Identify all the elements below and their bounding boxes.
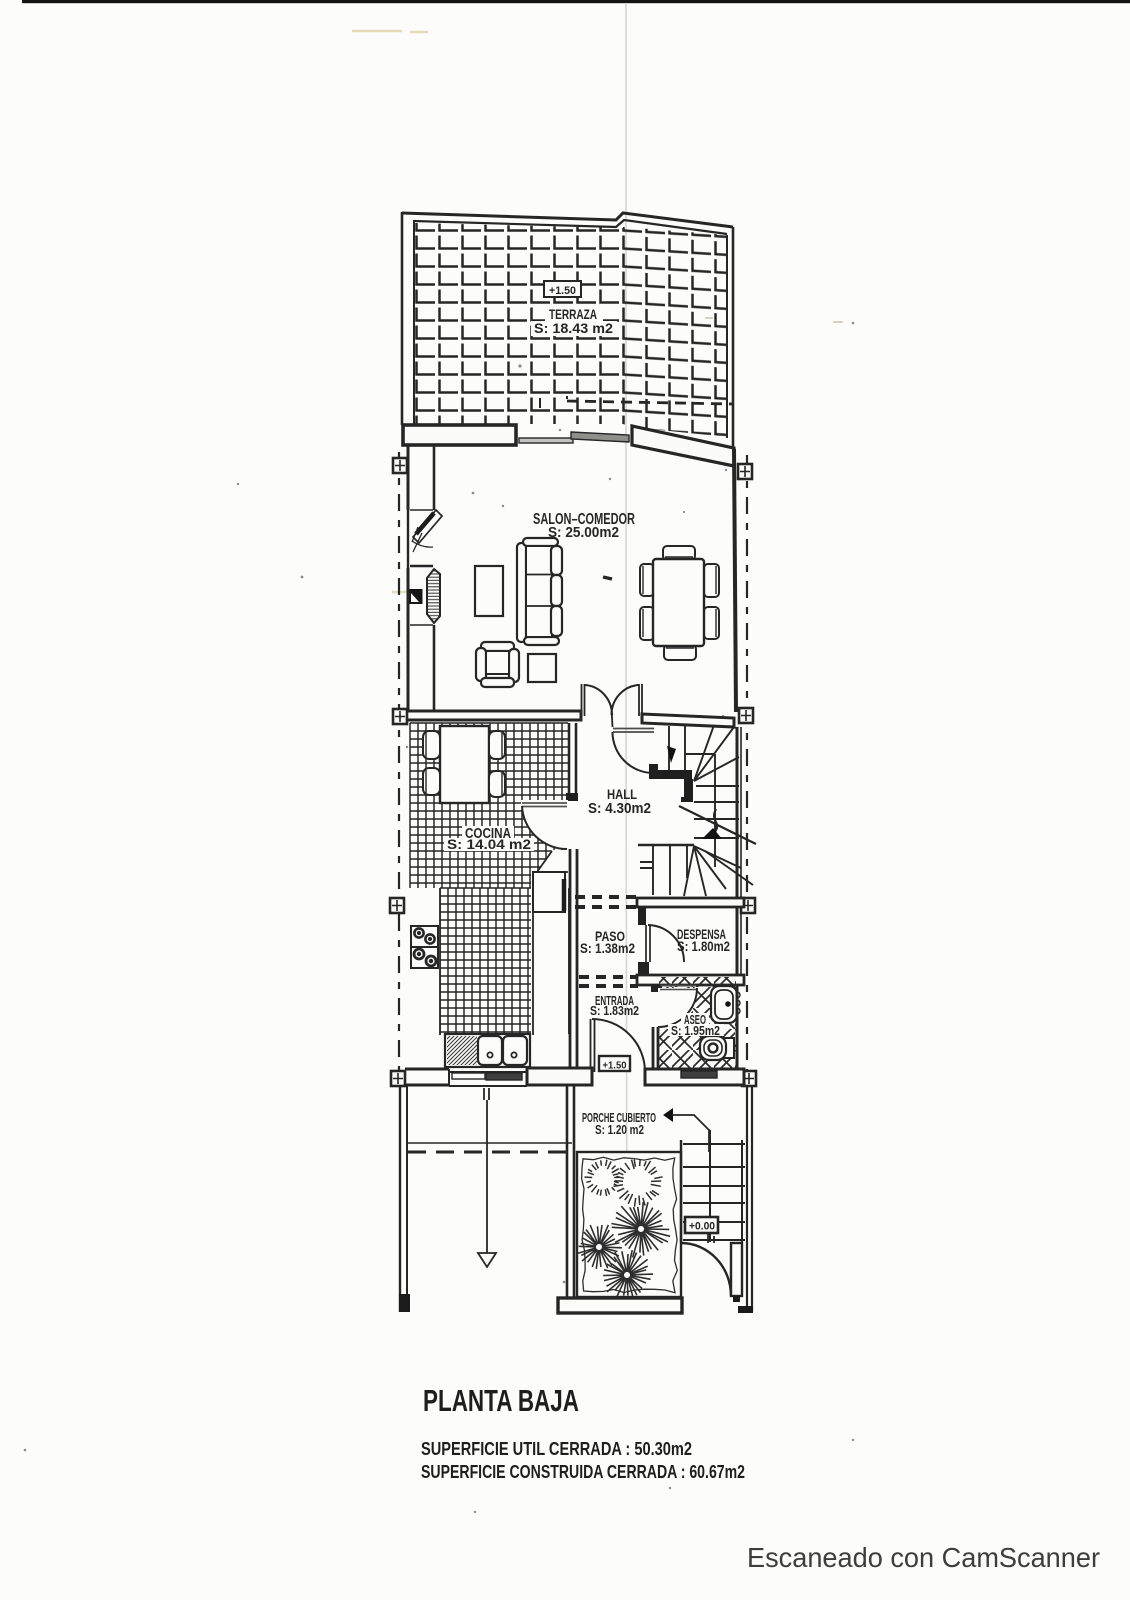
svg-text:S: 1.20 m2: S: 1.20 m2	[595, 1123, 644, 1137]
svg-text:SUPERFICIE UTIL CERRADA :: SUPERFICIE UTIL CERRADA : 50.30m2	[421, 1439, 692, 1459]
svg-text:SUPERFICIE CONSTRUIDA CERRAD: SUPERFICIE CONSTRUIDA CERRADA : 60.67m2	[421, 1462, 745, 1482]
svg-text:S: 18.43 m2: S: 18.43 m2	[534, 320, 613, 336]
svg-text:PLANTA BAJA: PLANTA BAJA	[423, 1383, 579, 1418]
svg-text:S: 4.30m2: S: 4.30m2	[588, 801, 651, 817]
svg-text:S: 1.95m2: S: 1.95m2	[671, 1023, 720, 1038]
svg-text:HALL: HALL	[607, 786, 637, 802]
svg-text:S: 1.83m2: S: 1.83m2	[590, 1003, 639, 1018]
svg-text:S: 1.80m2: S: 1.80m2	[677, 939, 730, 954]
svg-text:S: 1.38m2: S: 1.38m2	[580, 940, 635, 956]
svg-text:S: 14.04 m2: S: 14.04 m2	[447, 836, 531, 852]
svg-text:+0.00: +0.00	[689, 1221, 715, 1233]
svg-text:S: 25.00m2: S: 25.00m2	[548, 524, 619, 541]
svg-text:Escaneado con CamScanner: Escaneado con CamScanner	[747, 1542, 1100, 1573]
svg-text:+1.50: +1.50	[549, 285, 576, 297]
svg-text:+1.50: +1.50	[603, 1060, 627, 1072]
